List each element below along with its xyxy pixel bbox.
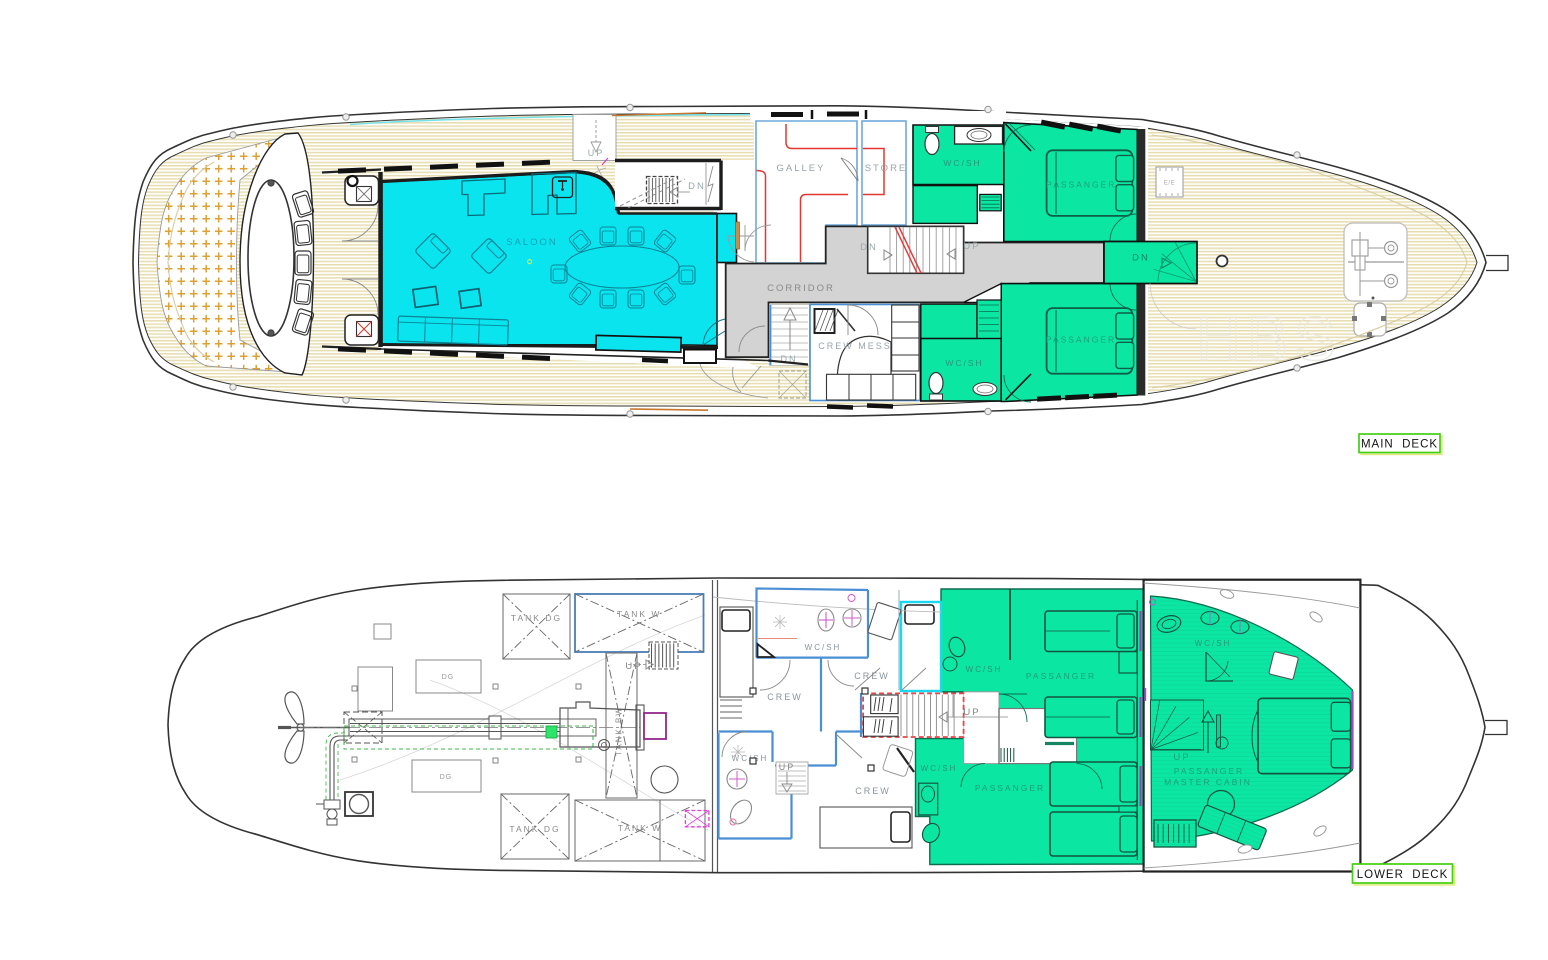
svg-text:DN: DN: [860, 242, 878, 253]
svg-text:WC/SH: WC/SH: [943, 158, 981, 168]
svg-text:UP: UP: [963, 707, 980, 718]
svg-text:TANK W: TANK W: [618, 823, 662, 833]
svg-text:MAIN DECK: MAIN DECK: [1361, 439, 1438, 451]
svg-text:CORRIDOR: CORRIDOR: [767, 283, 835, 294]
svg-text:CREW: CREW: [854, 671, 890, 681]
svg-text:PASSANGER: PASSANGER: [975, 783, 1045, 793]
svg-text:DN: DN: [1132, 253, 1150, 264]
svg-text:STORE: STORE: [865, 163, 908, 174]
svg-text:UP: UP: [625, 661, 642, 672]
svg-text:E/E: E/E: [1164, 181, 1175, 187]
svg-text:TANK BW: TANK BW: [615, 706, 624, 756]
svg-text:MASTER CABIN: MASTER CABIN: [1164, 777, 1252, 787]
svg-text:LOWER DECK: LOWER DECK: [1357, 869, 1449, 881]
svg-text:DG: DG: [442, 674, 455, 681]
svg-text:TANK DG: TANK DG: [509, 824, 560, 834]
svg-text:UP: UP: [779, 762, 796, 772]
svg-text:PASSANGER: PASSANGER: [1046, 180, 1116, 190]
svg-text:CREW: CREW: [767, 692, 803, 702]
svg-text:GALLEY: GALLEY: [777, 163, 826, 174]
svg-text:PASSANGER: PASSANGER: [1026, 671, 1096, 681]
svg-text:WC/SH: WC/SH: [805, 643, 842, 652]
svg-text:TANK DG: TANK DG: [511, 613, 562, 623]
svg-text:UP: UP: [963, 241, 980, 252]
svg-text:UP: UP: [1173, 752, 1190, 763]
svg-text:WC/SH: WC/SH: [1195, 639, 1232, 648]
svg-text:PASSANGER: PASSANGER: [1046, 335, 1116, 345]
svg-text:WC/SH: WC/SH: [921, 764, 958, 773]
svg-text:PASSANGER: PASSANGER: [1174, 766, 1244, 776]
svg-text:DN: DN: [688, 181, 706, 192]
svg-text:WC/SH: WC/SH: [966, 665, 1003, 674]
svg-text:WC/SH: WC/SH: [945, 358, 983, 368]
svg-text:SALOON: SALOON: [506, 237, 558, 248]
svg-text:TANK W: TANK W: [617, 609, 661, 619]
svg-text:CREW MESS: CREW MESS: [818, 341, 892, 351]
svg-text:CREW: CREW: [855, 786, 891, 796]
svg-text:DG: DG: [440, 774, 453, 781]
svg-text:HBS: HBS: [1196, 305, 1341, 374]
